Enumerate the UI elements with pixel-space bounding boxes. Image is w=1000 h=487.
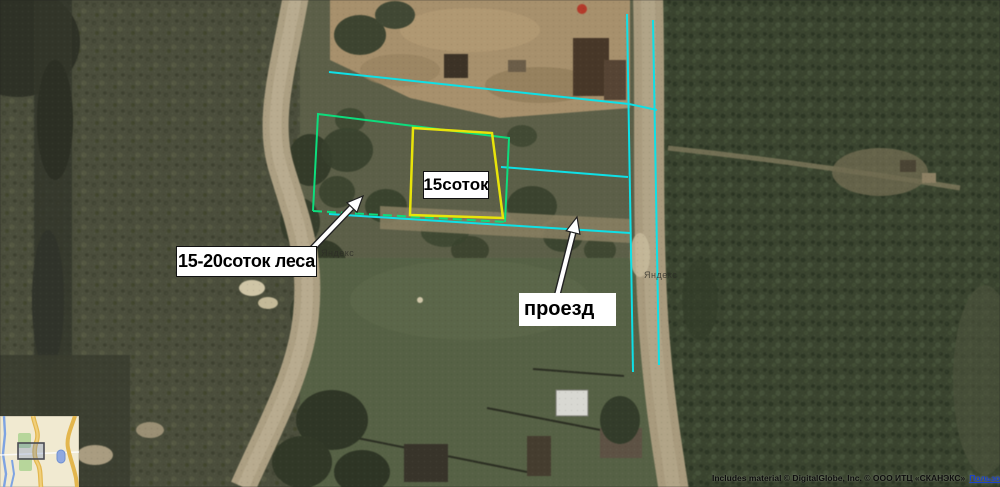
minimap-pond (57, 450, 65, 463)
label-forest-plot: 15-20соток леса (176, 246, 317, 277)
forest-arrow (311, 196, 363, 250)
cyan-line-vertical-right (653, 20, 659, 365)
attribution-text: Includes material © DigitalGlobe, Inc. ©… (712, 473, 965, 483)
attribution-bar: Includes material © DigitalGlobe, Inc. ©… (712, 473, 1000, 486)
map-viewport[interactable]: 15-20соток леса 15соток проезд Яндекс Ян… (0, 0, 1000, 487)
yandex-watermark: Яндекс (321, 248, 354, 258)
annotations-overlay (0, 0, 1000, 487)
cyan-line-vertical-left (627, 14, 633, 372)
cyan-line-top (329, 72, 657, 110)
user-agreement-link[interactable]: Пользовательское соглашение (969, 473, 1000, 483)
label-passage: проезд (519, 293, 616, 326)
overview-minimap[interactable] (0, 416, 79, 487)
label-15sotok-plot: 15соток (423, 171, 489, 199)
yandex-watermark-2: Яндекс (644, 270, 677, 280)
cyan-line-middle (501, 167, 628, 177)
minimap-viewport-rect[interactable] (18, 443, 44, 459)
minimap-park-2 (19, 458, 32, 471)
